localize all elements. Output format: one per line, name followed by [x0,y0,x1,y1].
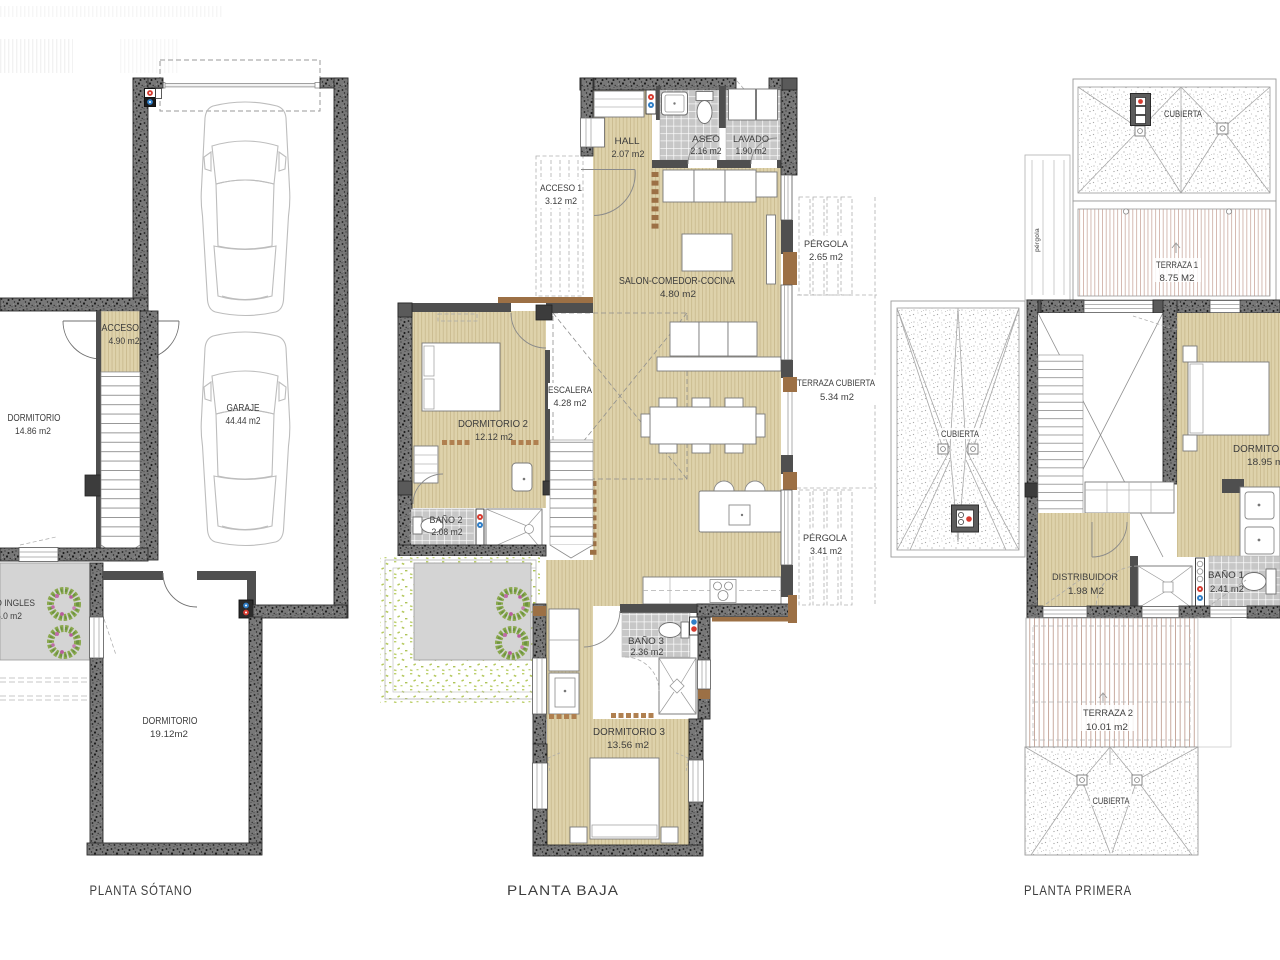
svg-text:44.44 m2: 44.44 m2 [226,416,261,427]
svg-text:3.12 m2: 3.12 m2 [545,196,577,206]
svg-text:DISTRIBUIDOR: DISTRIBUIDOR [1052,572,1118,582]
svg-text:1.90 m2: 1.90 m2 [736,146,767,156]
svg-text:CUBIERTA: CUBIERTA [1164,109,1202,119]
svg-text:LAVADO: LAVADO [733,134,769,145]
svg-text:SALON-COMEDOR-COCINA: SALON-COMEDOR-COCINA [619,276,735,287]
svg-text:HALL: HALL [615,136,640,147]
svg-text:2.65 m2: 2.65 m2 [809,252,843,262]
svg-text:DORMITORIO 2: DORMITORIO 2 [458,419,528,430]
svg-text:3.41 m2: 3.41 m2 [810,546,842,556]
svg-text:5.0 m2: 5.0 m2 [0,611,22,621]
svg-text:18.95 m2: 18.95 m2 [1247,457,1280,468]
svg-text:19.12m2: 19.12m2 [150,729,188,740]
svg-text:pérgola: pérgola [1034,228,1041,252]
svg-text:12.12 m2: 12.12 m2 [475,432,513,443]
svg-text:2.08 m2: 2.08 m2 [432,527,463,537]
svg-text:13.56 m2: 13.56 m2 [607,740,649,751]
svg-text:4.90 m2: 4.90 m2 [109,336,140,347]
svg-text:2.16 m2: 2.16 m2 [691,146,722,156]
svg-text:BAÑO 2: BAÑO 2 [430,515,463,525]
svg-text:PATIO INGLES: PATIO INGLES [0,598,35,608]
svg-text:BAÑO 3: BAÑO 3 [628,636,664,646]
svg-text:2.07 m2: 2.07 m2 [612,149,645,159]
svg-text:TERRAZA CUBIERTA: TERRAZA CUBIERTA [797,378,876,389]
svg-text:ESCALERA: ESCALERA [548,385,593,396]
svg-text:ACCESO 1: ACCESO 1 [540,183,582,194]
svg-text:BAÑO 1: BAÑO 1 [1208,570,1244,580]
svg-text:DORMITORIO: DORMITORIO [143,716,198,727]
svg-text:DORMITORIO 1: DORMITORIO 1 [1233,444,1280,455]
svg-text:PÉRGOLA: PÉRGOLA [804,239,849,250]
svg-text:DORMITORIO 3: DORMITORIO 3 [593,727,665,738]
svg-text:5.34 m2: 5.34 m2 [820,392,854,402]
svg-text:DORMITORIO: DORMITORIO [8,413,61,424]
svg-text:TERRAZA 2: TERRAZA 2 [1083,708,1133,718]
svg-text:PLANTA PRIMERA: PLANTA PRIMERA [1024,882,1132,898]
svg-text:ASEO: ASEO [692,134,720,145]
svg-text:CUBIERTA: CUBIERTA [941,429,979,439]
svg-text:2.36 m2: 2.36 m2 [631,647,664,657]
svg-text:8.75 M2: 8.75 M2 [1160,273,1195,283]
svg-text:PÉRGOLA: PÉRGOLA [803,533,848,544]
svg-text:1.98 M2: 1.98 M2 [1068,586,1104,596]
svg-text:PLANTA SÓTANO: PLANTA SÓTANO [90,882,193,898]
svg-text:4.80 m2: 4.80 m2 [660,289,696,300]
svg-text:TERRAZA 1: TERRAZA 1 [1156,260,1198,270]
svg-text:GARAJE: GARAJE [227,402,260,414]
svg-text:14.86 m2: 14.86 m2 [15,426,51,437]
svg-text:CUBIERTA: CUBIERTA [1093,796,1130,806]
svg-text:4.28 m2: 4.28 m2 [554,398,587,408]
svg-text:10.01 m2: 10.01 m2 [1086,722,1128,732]
svg-text:PLANTA BAJA: PLANTA BAJA [507,882,619,898]
